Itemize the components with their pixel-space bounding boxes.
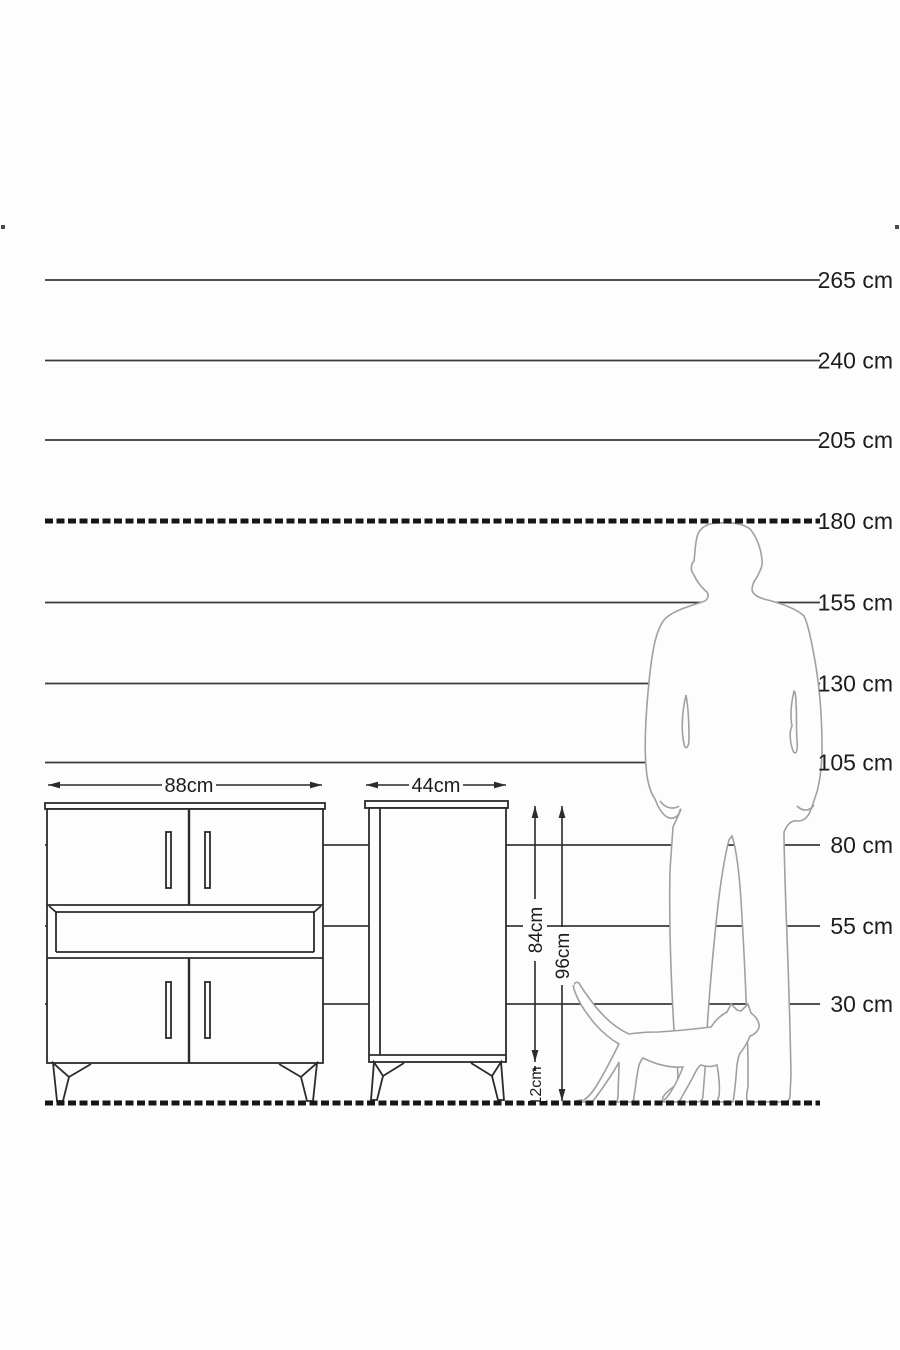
narrow-cabinet-body xyxy=(369,808,506,1062)
height-label-205: 205 cm xyxy=(818,427,893,453)
wide-cabinet-upper-right-handle xyxy=(205,832,210,888)
dimension-84cm-label: 84cm xyxy=(526,907,547,953)
wide-cabinet-top-board xyxy=(45,803,325,809)
height-label-55: 55 cm xyxy=(830,913,893,939)
dimension-96cm-label: 96cm xyxy=(553,933,574,979)
narrow-cabinet xyxy=(365,801,508,1100)
wide-cabinet-body xyxy=(47,809,323,1063)
narrow-cabinet-top-board xyxy=(365,801,508,808)
dimension-88cm-label: 88cm xyxy=(165,775,214,797)
wide-cabinet-lower-right-handle xyxy=(205,982,210,1038)
dimension-44cm-label: 44cm xyxy=(412,775,461,797)
wide-cabinet-upper-left-handle xyxy=(166,832,171,888)
wide-cabinet xyxy=(45,803,325,1101)
height-label-155: 155 cm xyxy=(818,590,893,616)
height-label-30: 30 cm xyxy=(830,991,893,1017)
height-label-80: 80 cm xyxy=(830,832,893,858)
height-label-240: 240 cm xyxy=(818,348,893,374)
left-edge-mark xyxy=(1,225,5,229)
height-label-265: 265 cm xyxy=(818,267,893,293)
height-label-180: 180 cm xyxy=(818,508,893,534)
diagram-svg: 88cm 44cm 84cm 96cm 12cm 265 cm 240 cm 2… xyxy=(0,0,900,1350)
height-label-130: 130 cm xyxy=(818,671,893,697)
dimension-12cm: 12cm xyxy=(524,1066,546,1106)
wide-cabinet-lower-left-handle xyxy=(166,982,171,1038)
right-edge-mark xyxy=(895,225,899,229)
furniture-dimension-diagram: 88cm 44cm 84cm 96cm 12cm 265 cm 240 cm 2… xyxy=(0,0,900,1350)
dimension-12cm-label: 12cm xyxy=(528,1066,545,1105)
height-label-105: 105 cm xyxy=(818,750,893,776)
